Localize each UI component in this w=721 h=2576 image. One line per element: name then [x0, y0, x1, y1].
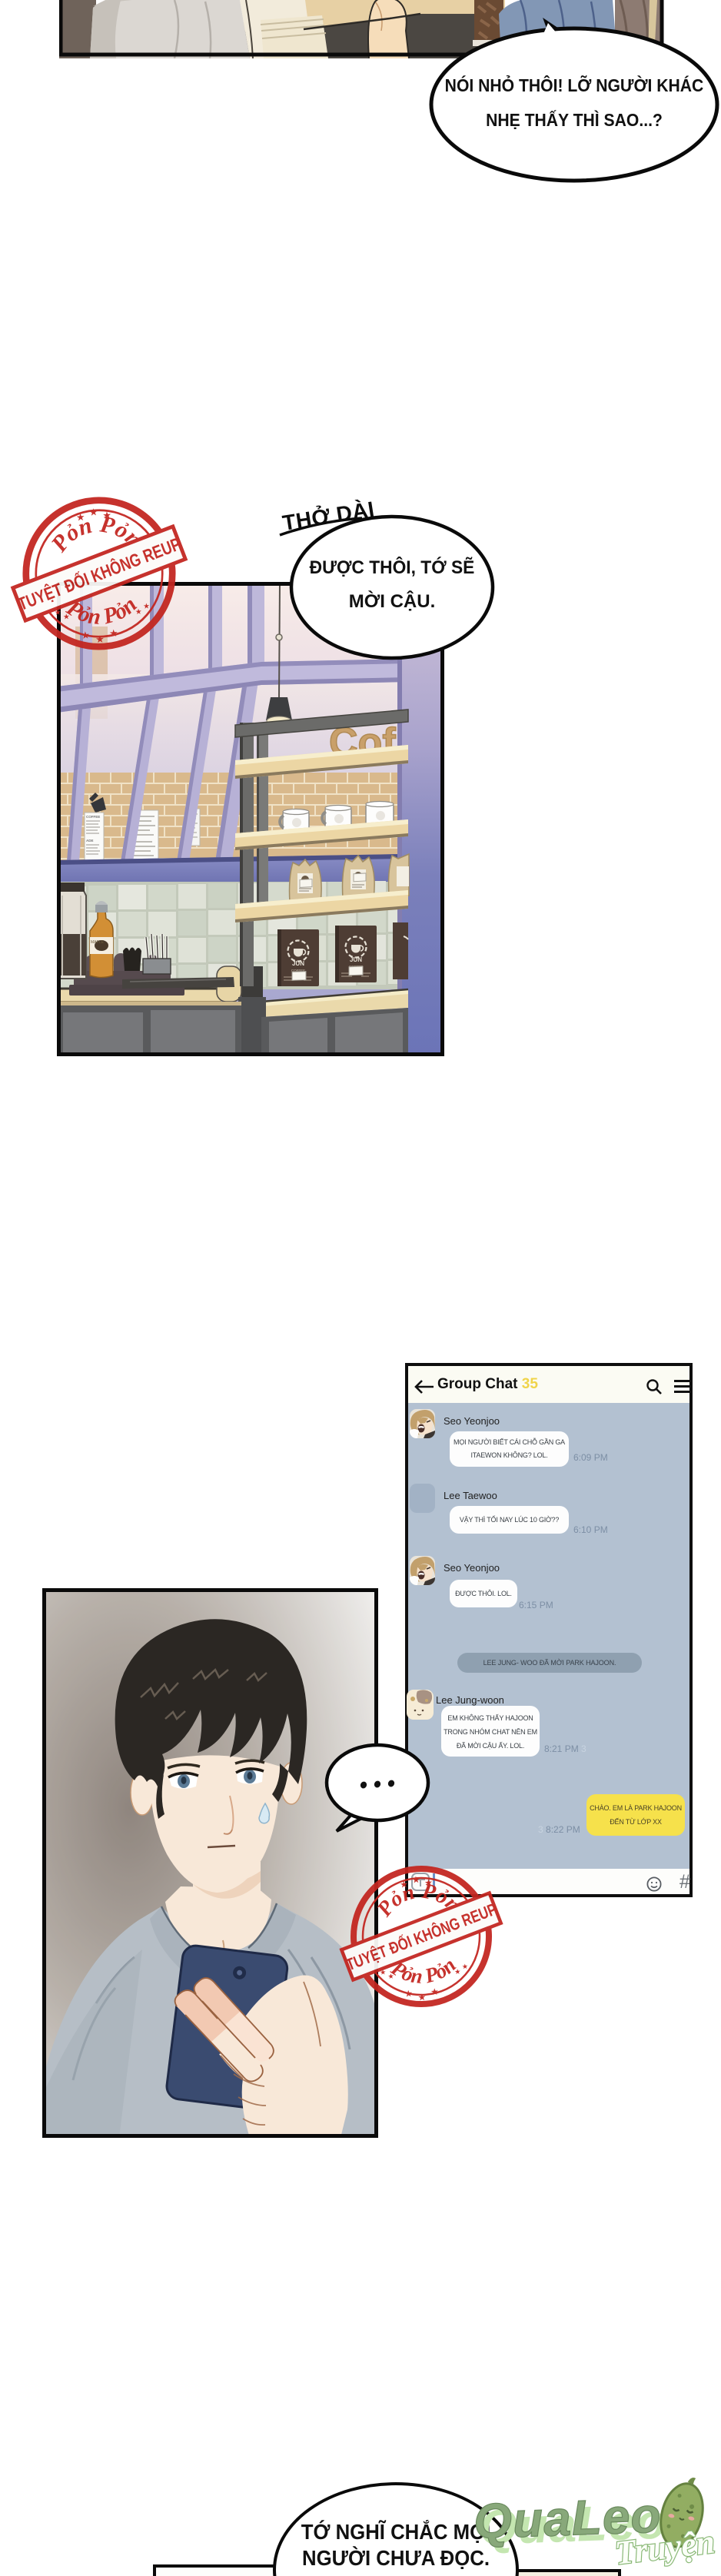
svg-text:JUN: JUN [350, 956, 362, 963]
svg-text:ĐƯỢC THÔI, TỚ SẼ: ĐƯỢC THÔI, TỚ SẼ [310, 556, 475, 577]
svg-text:MAPLE: MAPLE [91, 940, 105, 945]
svg-text:★: ★ [454, 1968, 461, 1976]
svg-text:★: ★ [424, 1877, 434, 1889]
svg-text:★: ★ [109, 627, 119, 640]
svg-text:MỜI CẬU.: MỜI CẬU. [349, 590, 435, 612]
svg-text:★: ★ [95, 633, 105, 646]
svg-text:COFFEE: COFFEE [86, 815, 100, 819]
svg-text:★: ★ [102, 509, 112, 521]
svg-text:ADE: ADE [86, 839, 94, 843]
svg-text:NÓI NHỎ THÔI! LỠ NGƯỜI KHÁC: NÓI NHỎ THÔI! LỠ NGƯỜI KHÁC [445, 75, 704, 95]
svg-text:★: ★ [400, 1879, 409, 1890]
svg-text:JUN: JUN [292, 960, 304, 967]
svg-text:NHẸ THẤY THÌ SAO...?: NHẸ THẤY THÌ SAO...? [486, 110, 663, 130]
svg-text:★: ★ [63, 613, 71, 622]
svg-text:TUYỆT ĐỐI KHÔNG REUP: TUYỆT ĐỐI KHÔNG REUP [344, 1900, 500, 1975]
svg-text:★: ★ [387, 1973, 394, 1981]
svg-text:★: ★ [75, 511, 85, 524]
svg-text:TUYỆT ĐỐI KHÔNG REUP: TUYỆT ĐỐI KHÔNG REUP [15, 533, 184, 615]
svg-text:★: ★ [81, 629, 91, 641]
svg-text:★: ★ [135, 607, 143, 617]
svg-text:★: ★ [88, 506, 98, 518]
svg-text:★: ★ [430, 1986, 440, 1998]
svg-text:★: ★ [417, 1992, 427, 2003]
svg-text:★: ★ [143, 602, 151, 611]
svg-text:★: ★ [411, 1874, 420, 1886]
svg-text:★: ★ [404, 1988, 414, 1999]
svg-text:★: ★ [462, 1963, 469, 1971]
